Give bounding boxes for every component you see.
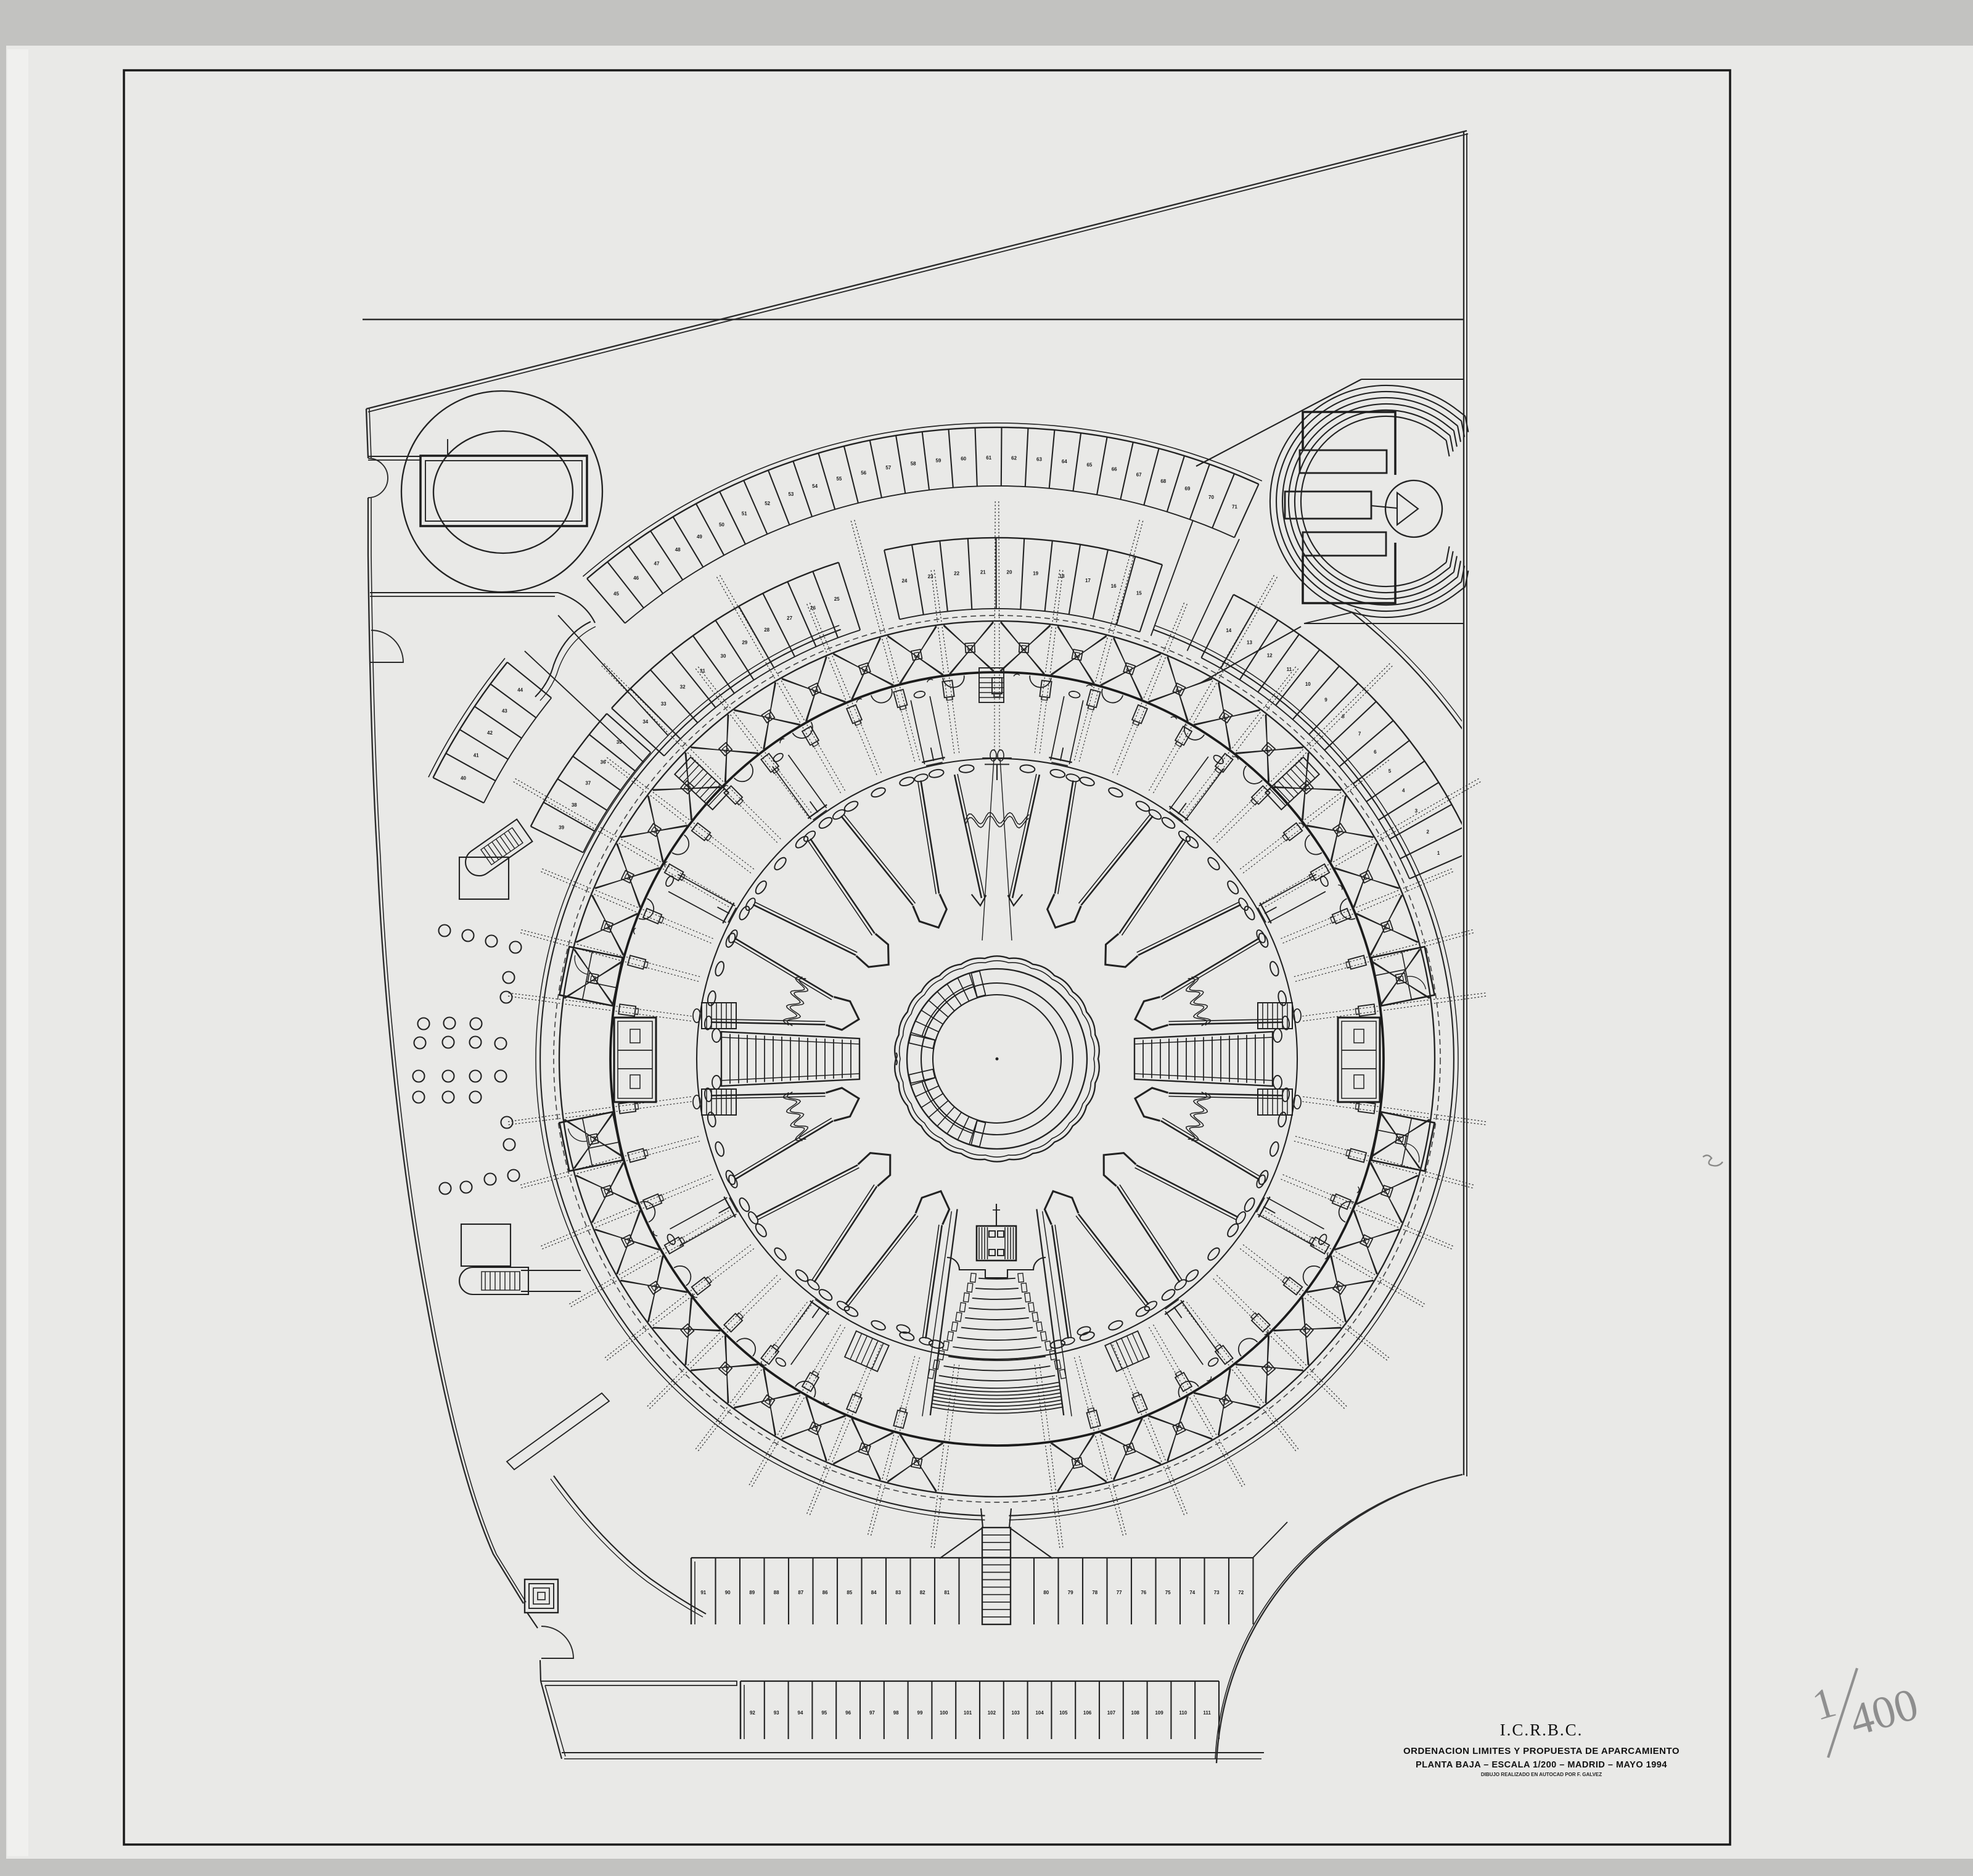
svg-text:11: 11	[1287, 667, 1292, 672]
svg-text:15: 15	[1136, 590, 1142, 596]
svg-text:43: 43	[502, 709, 507, 714]
svg-text:33: 33	[661, 701, 667, 707]
svg-text:30: 30	[721, 654, 726, 659]
svg-text:DIBUJO REALIZADO EN AUTOCAD PO: DIBUJO REALIZADO EN AUTOCAD POR F. GALVE…	[1481, 1772, 1602, 1777]
svg-text:67: 67	[1136, 472, 1142, 478]
svg-text:39: 39	[559, 825, 564, 830]
svg-text:45: 45	[613, 591, 619, 597]
svg-text:32: 32	[680, 685, 686, 690]
svg-text:57: 57	[885, 465, 891, 471]
svg-text:76: 76	[1141, 1590, 1146, 1595]
svg-text:90: 90	[725, 1590, 731, 1595]
svg-text:107: 107	[1107, 1710, 1116, 1716]
svg-text:52: 52	[765, 501, 770, 506]
svg-text:1: 1	[1437, 850, 1440, 856]
svg-text:75: 75	[1165, 1590, 1171, 1595]
svg-text:66: 66	[1112, 467, 1117, 472]
svg-text:111: 111	[1203, 1710, 1211, 1716]
svg-text:60: 60	[961, 456, 966, 462]
svg-text:94: 94	[798, 1710, 803, 1716]
svg-text:70: 70	[1208, 495, 1214, 500]
svg-text:79: 79	[1068, 1590, 1073, 1595]
svg-text:ORDENACION LIMITES Y PROPUESTA: ORDENACION LIMITES Y PROPUESTA DE APARCA…	[1403, 1746, 1680, 1756]
svg-text:10: 10	[1305, 681, 1311, 687]
svg-text:40: 40	[461, 776, 466, 781]
svg-text:44: 44	[517, 687, 523, 693]
svg-text:110: 110	[1179, 1710, 1187, 1716]
svg-text:12: 12	[1267, 652, 1273, 658]
svg-text:29: 29	[742, 640, 747, 645]
svg-text:92: 92	[750, 1710, 755, 1716]
svg-text:74: 74	[1189, 1590, 1195, 1595]
svg-text:102: 102	[988, 1710, 996, 1716]
svg-text:68: 68	[1160, 479, 1166, 484]
svg-text:3: 3	[1415, 808, 1418, 814]
svg-text:91: 91	[700, 1590, 706, 1595]
svg-text:41: 41	[474, 752, 479, 758]
svg-text:97: 97	[869, 1710, 875, 1716]
svg-text:95: 95	[821, 1710, 827, 1716]
svg-text:104: 104	[1035, 1710, 1044, 1716]
svg-text:53: 53	[788, 492, 794, 497]
svg-text:93: 93	[774, 1710, 779, 1716]
svg-text:100: 100	[940, 1710, 948, 1716]
svg-text:PLANTA BAJA – ESCALA 1/200 – M: PLANTA BAJA – ESCALA 1/200 – MADRID – MA…	[1416, 1760, 1667, 1770]
svg-text:19: 19	[1033, 571, 1038, 577]
svg-text:73: 73	[1214, 1590, 1220, 1595]
svg-text:37: 37	[585, 781, 591, 786]
svg-text:7: 7	[1358, 731, 1361, 737]
svg-text:109: 109	[1155, 1710, 1163, 1716]
svg-text:62: 62	[1011, 455, 1017, 461]
svg-text:98: 98	[893, 1710, 899, 1716]
svg-text:84: 84	[871, 1590, 877, 1595]
svg-text:64: 64	[1062, 459, 1067, 464]
svg-text:23: 23	[928, 574, 933, 579]
svg-text:101: 101	[964, 1710, 972, 1716]
svg-text:77: 77	[1117, 1590, 1122, 1595]
svg-text:47: 47	[654, 561, 660, 566]
svg-text:34: 34	[642, 719, 648, 725]
svg-text:13: 13	[1247, 640, 1252, 645]
svg-text:2: 2	[1426, 829, 1429, 834]
svg-text:56: 56	[861, 470, 866, 475]
svg-text:69: 69	[1184, 486, 1190, 492]
svg-text:89: 89	[749, 1590, 755, 1595]
svg-text:21: 21	[980, 569, 986, 575]
svg-text:103: 103	[1012, 1710, 1020, 1716]
svg-text:86: 86	[822, 1590, 828, 1595]
svg-text:6: 6	[1374, 749, 1377, 755]
svg-text:55: 55	[836, 476, 842, 482]
svg-text:25: 25	[834, 596, 840, 602]
svg-text:87: 87	[798, 1590, 803, 1595]
svg-text:16: 16	[1111, 583, 1117, 589]
svg-text:50: 50	[719, 522, 724, 527]
svg-text:27: 27	[787, 615, 792, 621]
svg-text:88: 88	[774, 1590, 779, 1595]
svg-text:80: 80	[1043, 1590, 1049, 1595]
svg-text:24: 24	[901, 578, 907, 583]
svg-text:46: 46	[633, 575, 639, 581]
svg-text:96: 96	[845, 1710, 851, 1716]
svg-text:99: 99	[917, 1710, 923, 1716]
svg-text:108: 108	[1131, 1710, 1140, 1716]
svg-text:83: 83	[895, 1590, 901, 1595]
svg-text:54: 54	[812, 483, 818, 489]
svg-text:81: 81	[944, 1590, 950, 1595]
svg-text:72: 72	[1238, 1590, 1244, 1595]
svg-text:106: 106	[1083, 1710, 1092, 1716]
svg-text:I.C.R.B.C.: I.C.R.B.C.	[1500, 1721, 1583, 1739]
svg-text:82: 82	[920, 1590, 925, 1595]
svg-text:61: 61	[986, 455, 991, 461]
svg-text:65: 65	[1086, 463, 1092, 468]
svg-text:20: 20	[1007, 569, 1012, 575]
svg-text:63: 63	[1036, 456, 1042, 462]
svg-text:22: 22	[954, 571, 959, 577]
svg-text:58: 58	[911, 461, 916, 467]
svg-text:14: 14	[1226, 628, 1231, 633]
svg-text:85: 85	[847, 1590, 852, 1595]
svg-text:17: 17	[1085, 578, 1091, 583]
svg-text:5: 5	[1388, 768, 1392, 774]
svg-text:38: 38	[572, 802, 577, 808]
svg-text:105: 105	[1059, 1710, 1068, 1716]
svg-text:9: 9	[1324, 697, 1327, 702]
svg-text:4: 4	[1402, 788, 1405, 794]
svg-text:49: 49	[697, 534, 702, 540]
svg-text:28: 28	[764, 627, 769, 633]
svg-text:42: 42	[487, 730, 493, 736]
svg-text:78: 78	[1092, 1590, 1097, 1595]
svg-text:51: 51	[742, 511, 747, 516]
svg-text:71: 71	[1232, 504, 1237, 509]
svg-text:59: 59	[935, 458, 941, 464]
svg-text:48: 48	[675, 547, 681, 553]
